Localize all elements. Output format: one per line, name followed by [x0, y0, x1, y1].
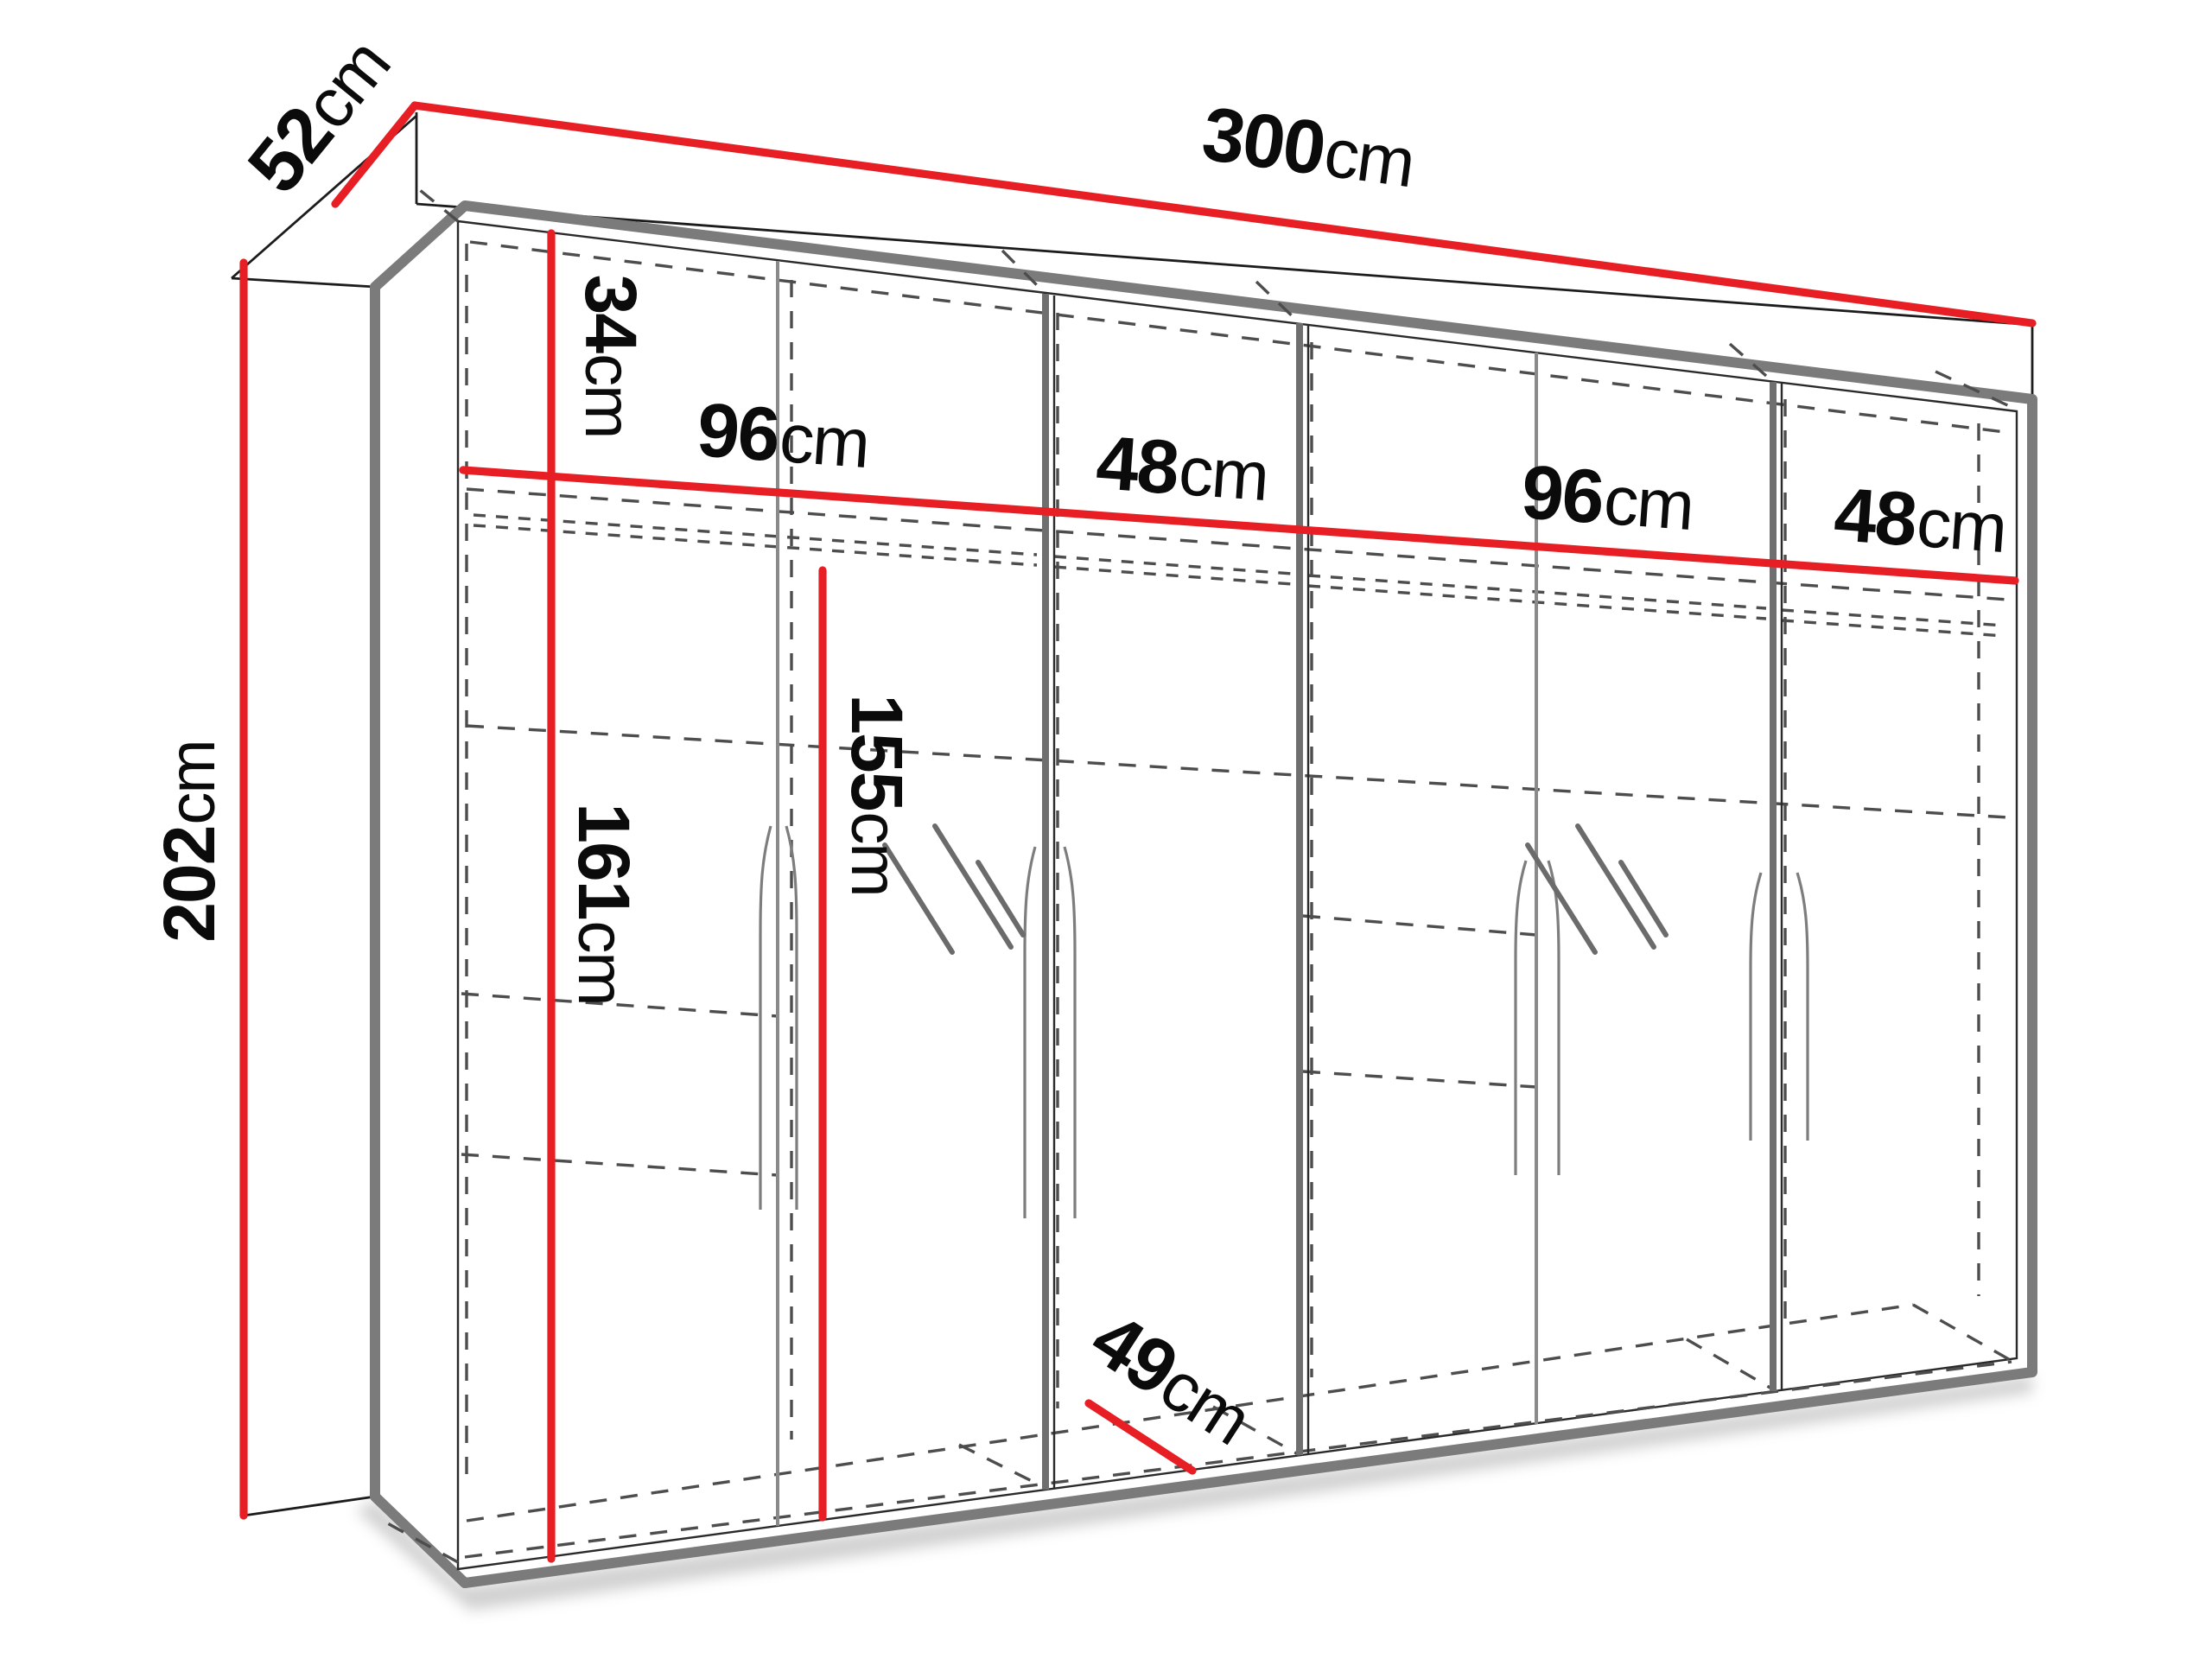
dim-label-width: 300cm: [1198, 90, 1420, 203]
dim-section3-value: 96: [1519, 448, 1606, 539]
dim-label-hanging-left: 161cm: [563, 803, 645, 1004]
dim-label-height: 202cm: [149, 741, 230, 942]
dim-label-depth: 52cm: [231, 22, 405, 209]
dim-section1-value: 96: [695, 386, 782, 477]
dim-section4-unit: cm: [1914, 484, 2008, 567]
dim-top-shelf-unit: cm: [571, 353, 645, 437]
height-dim-bottom-tick: [244, 1497, 375, 1516]
dim-width-value: 300: [1198, 90, 1330, 191]
dim-section3-unit: cm: [1601, 461, 1695, 544]
dim-height-unit: cm: [156, 741, 229, 824]
dim-section1-unit: cm: [777, 399, 871, 482]
dim-width-unit: cm: [1320, 113, 1419, 201]
dim-top-shelf-value: 34: [570, 275, 652, 354]
dim-label-top-shelf: 34cm: [570, 275, 652, 438]
dim-hanging-right-unit: cm: [837, 811, 911, 895]
wardrobe-dimension-diagram: 300cm 52cm 202cm 34cm 96cm 48cm 96cm 48c…: [0, 0, 2212, 1659]
dim-label-hanging-right: 155cm: [836, 694, 918, 895]
diagram-canvas: 300cm 52cm 202cm 34cm 96cm 48cm 96cm 48c…: [0, 0, 2212, 1659]
dim-section2-value: 48: [1094, 419, 1181, 510]
dim-hanging-right-value: 155: [836, 694, 918, 810]
height-dim-top-tick: [232, 278, 375, 287]
dim-section4-value: 48: [1832, 471, 1919, 562]
dim-height-value: 202: [149, 827, 230, 943]
dim-section2-unit: cm: [1176, 432, 1270, 515]
dim-hanging-left-value: 161: [563, 803, 645, 918]
dim-hanging-left-unit: cm: [564, 920, 638, 1004]
